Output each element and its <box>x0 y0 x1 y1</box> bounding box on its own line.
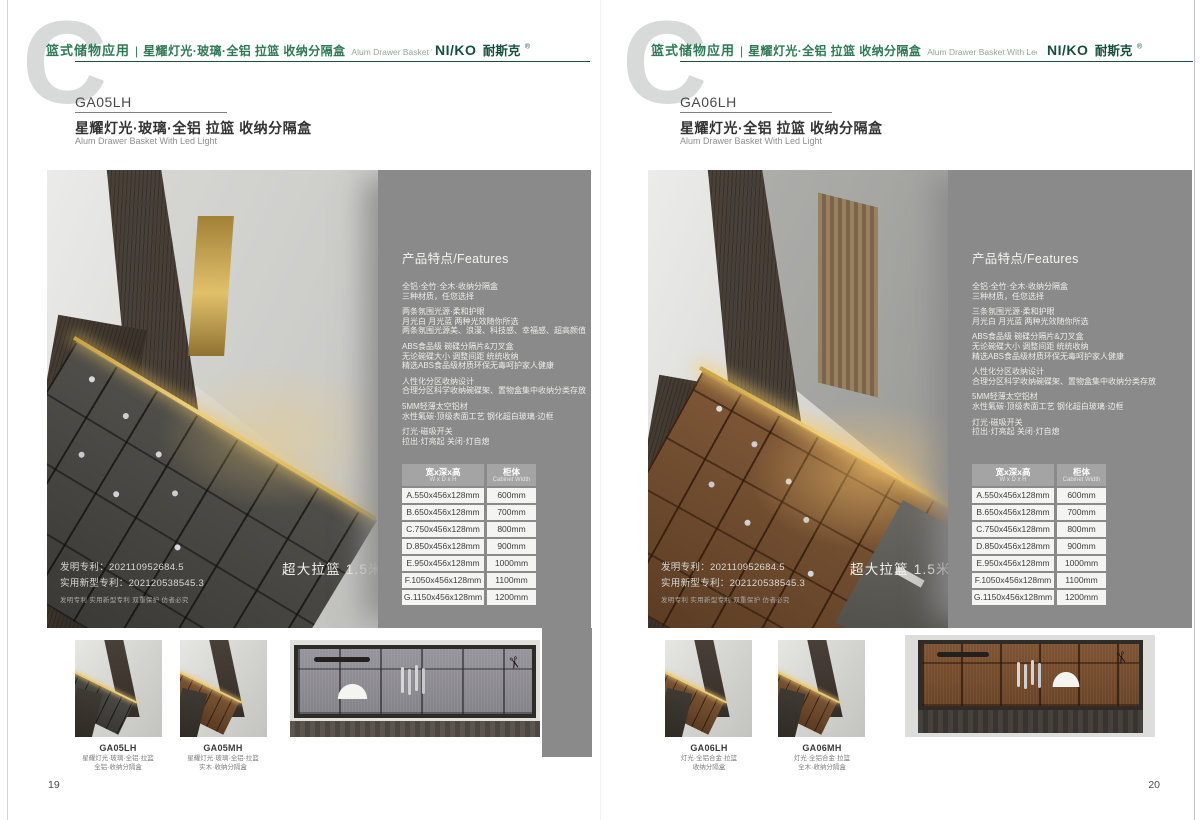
cabinet-cell: 700mm <box>487 505 536 520</box>
feature-line: 水性氟碳·顶级表面工艺 钢化超白玻璃·边框 <box>402 412 588 422</box>
header-divider: | <box>135 44 138 58</box>
measuring-spoons <box>335 681 370 699</box>
features-block: 产品特点/Features 全铝·全竹·全木·收纳分隔盒 三种材质，任您选择 三… <box>972 248 1158 443</box>
size-table-header-dims: 宽x深x高 W x D x H <box>972 464 1054 486</box>
page-header: 篮式储物应用 | 星耀灯光·全铝 拉篮 收纳分隔盒 Alum Drawer Ba… <box>651 40 1037 59</box>
feature-line: 月光白 月光蓝 两种光效随你所选 <box>402 317 588 327</box>
size-table-row: B.650x456x128mm 700mm <box>402 505 536 520</box>
feature-group: 全铝·全竹·全木·收纳分隔盒 三种材质，任您选择 <box>402 282 588 301</box>
patent-line2: 实用新型专利：202120538545.3 <box>661 576 805 592</box>
header-rule <box>75 61 590 62</box>
thumbnail-1 <box>75 640 162 737</box>
size-cell: D.850x456x128mm <box>972 539 1054 554</box>
feature-line: 月光白 月光蓝 两种光效随你所选 <box>972 317 1158 327</box>
counter-ledge <box>918 710 1143 732</box>
thumbnail-wide: ✂ <box>290 640 540 737</box>
size-cell: C.750x456x128mm <box>402 522 484 537</box>
brand-logo-cn: 耐斯克 <box>483 44 521 58</box>
size-cell: G.1150x456x128mm <box>972 590 1054 605</box>
feature-line: 两条氛围光源美、浪漫、科技感、幸福感、超高颜值 <box>402 326 588 336</box>
feature-group: 5MM轻薄太空铝材 水性氟碳·顶级表面工艺 钢化超白玻璃·边框 <box>402 402 588 421</box>
size-cell: E.950x456x128mm <box>972 556 1054 571</box>
size-table-header: 宽x深x高 W x D x H 柜体 Cabinet Width <box>402 464 536 486</box>
feature-group: 两条氛围光源·柔和护眼 月光白 月光蓝 两种光效随你所选 两条氛围光源美、浪漫、… <box>402 307 588 336</box>
thumbnail-model: GA06MH <box>757 743 887 753</box>
catalog-spread: C 篮式储物应用 | 星耀灯光·玻璃·全铝 拉篮 收纳分隔盒 Alum Draw… <box>0 0 1200 820</box>
header-product-line: 星耀灯光·全铝 拉篮 收纳分隔盒 <box>748 42 921 59</box>
size-table-header-cabinet: 柜体 Cabinet Width <box>1057 464 1106 486</box>
thumbnail-model: GA05MH <box>158 743 288 753</box>
feature-group: 灯光·磁吸开关 拉出·灯亮起 关闭·灯自熄 <box>972 418 1158 437</box>
wide-drawer-interior: ✂ <box>918 640 1143 710</box>
feature-line: 全铝·全竹·全木·收纳分隔盒 <box>972 282 1158 292</box>
size-cell: F.1050x456x128mm <box>972 573 1054 588</box>
size-table-row: B.650x456x128mm 700mm <box>972 505 1106 520</box>
hero-image: 发明专利：202110952684.5 实用新型专利：202120538545.… <box>648 170 1192 628</box>
feature-line: 人性化分区收纳设计 <box>402 377 588 387</box>
thumbnail-caption-line: 灯光·全铝合金·拉篮 <box>644 755 774 764</box>
size-table-header-cabinet: 柜体 Cabinet Width <box>487 464 536 486</box>
size-cell: A.550x456x128mm <box>972 488 1054 503</box>
feature-line: 精选ABS食品级材质环保无毒呵护家人健康 <box>402 361 588 371</box>
size-table-row: D.850x456x128mm 900mm <box>402 539 536 554</box>
cutlery <box>715 405 723 413</box>
counter-ledge <box>290 721 540 737</box>
feature-line: 灯光·磁吸开关 <box>402 427 588 437</box>
cabinet-cell: 1200mm <box>487 590 536 605</box>
cabinet-cell: 900mm <box>487 539 536 554</box>
feature-line: 合理分区科学收纳碗碟架、置物盒集中收纳分类存放 <box>402 386 588 396</box>
scissors-icon: ✂ <box>1110 649 1133 667</box>
thumbnail-2 <box>180 640 267 737</box>
feature-line: 无论碗碟大小 调整间距 统统收纳 <box>402 352 588 362</box>
size-cell: E.950x456x128mm <box>402 556 484 571</box>
patent-line3: 发明专利 实用新型专利 双重保护 仿者必究 <box>661 594 805 604</box>
thumbnail-2-caption: GA05MH 星耀灯光·玻璃·全铝·拉篮 实木·收纳分隔盒 <box>158 743 288 772</box>
brand-registered-mark: ® <box>525 44 530 51</box>
catalog-page-right: C 篮式储物应用 | 星耀灯光·全铝 拉篮 收纳分隔盒 Alum Drawer … <box>600 0 1200 820</box>
header-divider: | <box>740 44 743 58</box>
patent-line1: 发明专利：202110952684.5 <box>60 560 204 576</box>
spoons <box>1017 662 1020 687</box>
header-product-line-en: Alum Drawer Basket With Led Light <box>927 47 1037 57</box>
spoons <box>401 667 404 693</box>
cabinet-cell: 800mm <box>1057 522 1106 537</box>
feature-line: 全铝·全竹·全木·收纳分隔盒 <box>402 282 588 292</box>
cabinet-cell: 1100mm <box>1057 573 1106 588</box>
header-category: 篮式储物应用 <box>651 40 735 59</box>
brand-logo: NI/KO 耐斯克 ® <box>1047 40 1142 60</box>
thumbnail-1-caption: GA06LH 灯光·全铝合金·拉篮 收纳分隔盒 <box>644 743 774 772</box>
dims-header-en: W x D x H <box>402 477 484 484</box>
size-table-row: G.1150x456x128mm 1200mm <box>972 590 1106 605</box>
size-table-header-dims: 宽x深x高 W x D x H <box>402 464 484 486</box>
size-table-row: A.550x456x128mm 600mm <box>972 488 1106 503</box>
feature-group: 三条氛围光源·柔和护眼 月光白 月光蓝 两种光效随你所选 <box>972 307 1158 326</box>
feature-group: ABS食品级 碗碟分隔片&刀叉盒 无论碗碟大小 调整间距 统统收纳 精选ABS食… <box>402 342 588 371</box>
size-table-row: C.750x456x128mm 800mm <box>402 522 536 537</box>
header-rule <box>680 61 1193 62</box>
measuring-spoons <box>1050 669 1083 686</box>
size-cell: D.850x456x128mm <box>402 539 484 554</box>
thumbnail-caption-line: 收纳分隔盒 <box>644 764 774 773</box>
model-underline <box>680 112 832 113</box>
thumbnail-caption-line: 星耀灯光·玻璃·全铝·拉篮 <box>158 755 288 764</box>
rolling-pin <box>937 652 989 658</box>
thumbnail-model: GA06LH <box>644 743 774 753</box>
feature-line: ABS食品级 碗碟分隔片&刀叉盒 <box>972 332 1158 342</box>
feature-line: 5MM轻薄太空铝材 <box>402 402 588 412</box>
thumbnail-caption-line: 灯光·全铝合金·拉篮 <box>757 755 887 764</box>
feature-line: 精选ABS食品级材质环保无毒呵护家人健康 <box>972 352 1158 362</box>
cabinet-header-en: Cabinet Width <box>487 477 536 484</box>
catalog-page-left: C 篮式储物应用 | 星耀灯光·玻璃·全铝 拉篮 收纳分隔盒 Alum Draw… <box>0 0 600 820</box>
feature-group: ABS食品级 碗碟分隔片&刀叉盒 无论碗碟大小 调整间距 统统收纳 精选ABS食… <box>972 332 1158 361</box>
cabinet-cell: 1000mm <box>1057 556 1106 571</box>
patent-line3: 发明专利 实用新型专利 双重保护 仿者必究 <box>60 594 204 604</box>
page-number: 20 <box>1148 779 1160 791</box>
size-cell: B.650x456x128mm <box>402 505 484 520</box>
size-cell: G.1150x456x128mm <box>402 590 484 605</box>
patent-info: 发明专利：202110952684.5 实用新型专利：202120538545.… <box>661 560 805 604</box>
feature-line: ABS食品级 碗碟分隔片&刀叉盒 <box>402 342 588 352</box>
feature-line: 三种材质，任您选择 <box>972 292 1158 302</box>
rolling-pin <box>314 657 370 663</box>
thumbnail-1 <box>665 640 752 737</box>
thumbnail-caption-line: 全木·收纳分隔盒 <box>757 764 887 773</box>
dims-header-cn: 宽x深x高 <box>402 467 484 477</box>
brand-logo-cn: 耐斯克 <box>1095 44 1133 58</box>
thumbnail-caption-line: 实木·收纳分隔盒 <box>158 764 288 773</box>
size-table-header: 宽x深x高 W x D x H 柜体 Cabinet Width <box>972 464 1106 486</box>
size-table-row: D.850x456x128mm 900mm <box>972 539 1106 554</box>
size-table-row: G.1150x456x128mm 1200mm <box>402 590 536 605</box>
size-cell: F.1050x456x128mm <box>402 573 484 588</box>
product-title: 星耀灯光·全铝 拉篮 收纳分隔盒 <box>680 118 882 138</box>
feature-group: 5MM轻薄太空铝材 水性氟碳·顶级表面工艺 钢化超白玻璃·边框 <box>972 392 1158 411</box>
feature-group: 全铝·全竹·全木·收纳分隔盒 三种材质，任您选择 <box>972 282 1158 301</box>
features-heading: 产品特点/Features <box>972 248 1158 267</box>
feature-line: 水性氟碳·顶级表面工艺 钢化超白玻璃·边框 <box>972 402 1158 412</box>
scissors-icon: ✂ <box>502 654 525 672</box>
cabinet-cell: 1000mm <box>487 556 536 571</box>
header-product-line-en: Alum Drawer Basket With Led Light <box>351 47 432 57</box>
patent-info: 发明专利：202110952684.5 实用新型专利：202120538545.… <box>60 560 204 604</box>
cabinet-header-cn: 柜体 <box>1057 467 1106 477</box>
feature-group: 人性化分区收纳设计 合理分区科学收纳碗碟架、置物盒集中收纳分类存放 <box>972 367 1158 386</box>
feature-group: 人性化分区收纳设计 合理分区科学收纳碗碟架、置物盒集中收纳分类存放 <box>402 377 588 396</box>
features-block: 产品特点/Features 全铝·全竹·全木·收纳分隔盒 三种材质，任您选择 两… <box>402 248 588 452</box>
cabinet-cell: 600mm <box>487 488 536 503</box>
dims-header-cn: 宽x深x高 <box>972 467 1054 477</box>
cabinet-cell: 1100mm <box>487 573 536 588</box>
brand-logo-en: NI/KO <box>1047 42 1088 58</box>
cabinet-cell: 600mm <box>1057 488 1106 503</box>
feature-line: 灯光·磁吸开关 <box>972 418 1158 428</box>
brand-logo: NI/KO 耐斯克 ® <box>435 40 530 60</box>
cabinet-header-en: Cabinet Width <box>1057 477 1106 484</box>
size-table: 宽x深x高 W x D x H 柜体 Cabinet Width A.550x4… <box>402 464 536 607</box>
patent-line1: 发明专利：202110952684.5 <box>661 560 805 576</box>
cabinet-cell: 1200mm <box>1057 590 1106 605</box>
dims-header-en: W x D x H <box>972 477 1054 484</box>
cutlery <box>88 375 96 383</box>
feature-line: 三种材质，任您选择 <box>402 292 588 302</box>
size-table-row: F.1050x456x128mm 1100mm <box>972 573 1106 588</box>
product-model: GA05LH <box>75 94 132 110</box>
size-cell: A.550x456x128mm <box>402 488 484 503</box>
thumbnail-2-caption: GA06MH 灯光·全铝合金·拉篮 全木·收纳分隔盒 <box>757 743 887 772</box>
feature-line: 拉出·灯亮起 关闭·灯自熄 <box>402 437 588 447</box>
size-table: 宽x深x高 W x D x H 柜体 Cabinet Width A.550x4… <box>972 464 1106 607</box>
hero-image: 发明专利：202110952684.5 实用新型专利：202120538545.… <box>47 170 591 628</box>
size-cell: B.650x456x128mm <box>972 505 1054 520</box>
feature-group: 灯光·磁吸开关 拉出·灯亮起 关闭·灯自熄 <box>402 427 588 446</box>
features-panel: 产品特点/Features 全铝·全竹·全木·收纳分隔盒 三种材质，任您选择 两… <box>378 170 591 628</box>
cabinet-cell: 900mm <box>1057 539 1106 554</box>
header-product-line: 星耀灯光·玻璃·全铝 拉篮 收纳分隔盒 <box>143 42 345 59</box>
size-table-row: E.950x456x128mm 1000mm <box>972 556 1106 571</box>
model-underline <box>75 112 227 113</box>
size-table-row: A.550x456x128mm 600mm <box>402 488 536 503</box>
size-table-row: E.950x456x128mm 1000mm <box>402 556 536 571</box>
product-title: 星耀灯光·玻璃·全铝 拉篮 收纳分隔盒 <box>75 118 312 138</box>
feature-line: 两条氛围光源·柔和护眼 <box>402 307 588 317</box>
page-header: 篮式储物应用 | 星耀灯光·玻璃·全铝 拉篮 收纳分隔盒 Alum Drawer… <box>46 40 432 59</box>
thumbnail-2 <box>778 640 865 737</box>
cabinet-header-cn: 柜体 <box>487 467 536 477</box>
product-subtitle: Alum Drawer Basket With Led Light <box>680 136 822 146</box>
feature-line: 人性化分区收纳设计 <box>972 367 1158 377</box>
features-heading: 产品特点/Features <box>402 248 588 267</box>
feature-line: 5MM轻薄太空铝材 <box>972 392 1158 402</box>
thumbnail-wide: ✂ <box>905 635 1155 737</box>
size-cell: C.750x456x128mm <box>972 522 1054 537</box>
wood-slat-panel <box>818 193 878 398</box>
page-number: 19 <box>48 779 60 791</box>
patent-line2: 实用新型专利：202120538545.3 <box>60 576 204 592</box>
size-table-row: F.1050x456x128mm 1100mm <box>402 573 536 588</box>
brand-logo-en: NI/KO <box>435 42 476 58</box>
feature-line: 合理分区科学收纳碗碟架、置物盒集中收纳分类存放 <box>972 377 1158 387</box>
cabinet-cell: 800mm <box>487 522 536 537</box>
wide-drawer-interior: ✂ <box>294 645 537 718</box>
size-table-row: C.750x456x128mm 800mm <box>972 522 1106 537</box>
led-glow <box>157 360 397 510</box>
gray-band <box>542 628 592 757</box>
features-panel: 产品特点/Features 全铝·全竹·全木·收纳分隔盒 三种材质，任您选择 三… <box>948 170 1192 628</box>
product-model: GA06LH <box>680 94 737 110</box>
feature-line: 三条氛围光源·柔和护眼 <box>972 307 1158 317</box>
feature-line: 拉出·灯亮起 关闭·灯自熄 <box>972 427 1158 437</box>
brand-registered-mark: ® <box>1137 44 1142 51</box>
cabinet-cell: 700mm <box>1057 505 1106 520</box>
feature-line: 无论碗碟大小 调整间距 统统收纳 <box>972 342 1158 352</box>
header-category: 篮式储物应用 <box>46 40 130 59</box>
product-subtitle: Alum Drawer Basket With Led Light <box>75 136 217 146</box>
